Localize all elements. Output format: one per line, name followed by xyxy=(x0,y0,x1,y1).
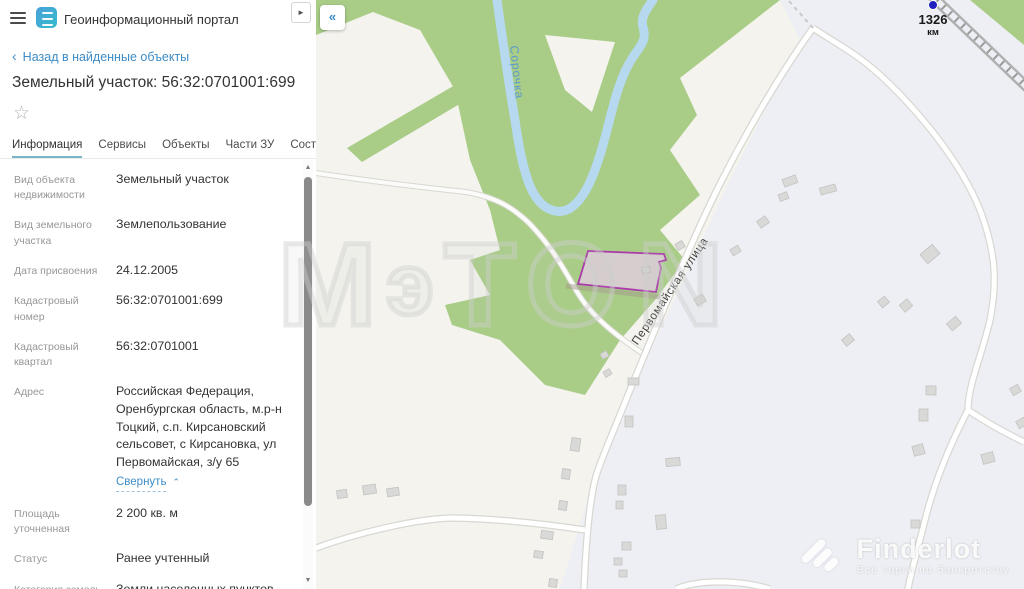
field-value: 2 200 кв. м xyxy=(116,505,292,537)
building-footprint xyxy=(534,550,544,558)
building-footprint xyxy=(911,520,920,528)
field-label: Категория земель xyxy=(14,581,106,589)
tab-Объекты[interactable]: Объекты xyxy=(162,133,209,159)
field-value-text: Землепользование xyxy=(116,217,226,231)
back-chevron-icon: ‹ xyxy=(12,48,17,64)
field-label: Вид объекта недвижимости xyxy=(14,171,106,203)
field-value-text: 56:32:0701001 xyxy=(116,339,199,353)
field-value: 56:32:0701001 xyxy=(116,338,292,370)
portal-logo-icon xyxy=(36,7,57,28)
building-footprint xyxy=(561,468,570,479)
building-footprint xyxy=(548,578,557,587)
field-value-text: Российская Федерация, Оренбургская облас… xyxy=(116,384,282,468)
collapse-address-link[interactable]: Свернуть xyxy=(116,474,166,491)
field-row: Площадь уточненная2 200 кв. м xyxy=(14,505,292,537)
collapse-panel-button[interactable]: « xyxy=(320,5,345,30)
field-label: Вид земельного участка xyxy=(14,216,106,248)
building-footprint xyxy=(655,515,666,530)
selected-parcel[interactable] xyxy=(578,251,666,292)
parcel-building xyxy=(642,266,651,273)
tab-Информация[interactable]: Информация xyxy=(12,133,82,159)
field-row: Категория земельЗемли населенных пунктов xyxy=(14,581,292,589)
field-value: 56:32:0701001:699 xyxy=(116,292,292,324)
field-value-text: 56:32:0701001:699 xyxy=(116,293,223,307)
building-footprint xyxy=(625,416,633,427)
field-label: Статус xyxy=(14,550,106,568)
collapse-chevron-icon: ⌃ xyxy=(172,476,180,489)
panel-scrollbar[interactable]: ▲ ▼ xyxy=(303,160,313,589)
building-footprint xyxy=(619,570,627,577)
field-value: Землепользование xyxy=(116,216,292,248)
building-footprint xyxy=(558,500,567,510)
field-value-text: 24.12.2005 xyxy=(116,263,178,277)
field-row: Вид объекта недвижимостиЗемельный участо… xyxy=(14,171,292,203)
field-value-text: Земельный участок xyxy=(116,172,229,186)
map[interactable]: Сорочка Первомайская улица xyxy=(316,0,1024,589)
tab-bar: ИнформацияСервисыОбъектыЧасти ЗУСостав xyxy=(0,133,316,159)
building-footprint xyxy=(622,542,631,550)
field-value-text: Ранее учтенный xyxy=(116,551,209,565)
building-footprint xyxy=(919,409,928,421)
field-row: Кадастровый квартал56:32:0701001 xyxy=(14,338,292,370)
back-link-label: Назад в найденные объекты xyxy=(23,50,189,64)
building-footprint xyxy=(628,378,639,385)
favorite-star-icon[interactable]: ☆ xyxy=(13,104,35,123)
info-panel: Геоинформационный портал ‹Назад в найден… xyxy=(0,0,316,589)
page-title: Земельный участок: 56:32:0701001:699 xyxy=(0,64,316,92)
scrollbar-thumb[interactable] xyxy=(304,177,312,506)
building-footprint xyxy=(618,485,626,495)
back-link[interactable]: ‹Назад в найденные объекты xyxy=(0,40,316,64)
km-marker-unit: км xyxy=(927,27,939,38)
field-label: Площадь уточненная xyxy=(14,505,106,537)
field-label: Кадастровый номер xyxy=(14,292,106,324)
scroll-down-icon[interactable]: ▼ xyxy=(303,575,313,587)
map-canvas[interactable]: Сорочка Первомайская улица xyxy=(316,0,1024,589)
building-footprint xyxy=(570,437,581,451)
field-value-text: 2 200 кв. м xyxy=(116,506,178,520)
tab-Части ЗУ[interactable]: Части ЗУ xyxy=(226,133,275,159)
building-footprint xyxy=(666,457,681,466)
building-footprint xyxy=(336,489,347,498)
building-footprint xyxy=(387,487,400,497)
field-value-text: Земли населенных пунктов xyxy=(116,582,274,589)
field-label: Дата присвоения xyxy=(14,262,106,280)
building-footprint xyxy=(541,530,554,540)
panel-header: Геоинформационный портал xyxy=(0,0,316,40)
field-value: Земельный участок xyxy=(116,171,292,203)
menu-icon[interactable] xyxy=(10,12,26,24)
building-footprint xyxy=(362,484,376,495)
tab-Состав[interactable]: Состав xyxy=(290,133,316,159)
field-row: Кадастровый номер56:32:0701001:699 xyxy=(14,292,292,324)
field-label: Кадастровый квартал xyxy=(14,338,106,370)
scroll-up-icon[interactable]: ▲ xyxy=(303,162,313,174)
field-row: АдресРоссийская Федерация, Оренбургская … xyxy=(14,383,292,491)
tabs-scroll-right-button[interactable]: ► xyxy=(291,2,311,23)
app-title: Геоинформационный портал xyxy=(64,12,239,27)
field-row: Дата присвоения24.12.2005 xyxy=(14,262,292,280)
tab-Сервисы[interactable]: Сервисы xyxy=(98,133,146,159)
building-footprint xyxy=(616,501,623,509)
field-list: Вид объекта недвижимостиЗемельный участо… xyxy=(0,159,316,589)
km-marker-value: 1326 xyxy=(919,12,948,27)
field-value: Российская Федерация, Оренбургская облас… xyxy=(116,383,292,491)
field-label: Адрес xyxy=(14,383,106,491)
field-value: 24.12.2005 xyxy=(116,262,292,280)
field-value: Земли населенных пунктов xyxy=(116,581,292,589)
geo-portal-app: Геоинформационный портал ‹Назад в найден… xyxy=(0,0,1024,589)
field-value: Ранее учтенный xyxy=(116,550,292,568)
building-footprint xyxy=(926,386,936,395)
field-row: СтатусРанее учтенный xyxy=(14,550,292,568)
building-footprint xyxy=(614,558,622,565)
field-row: Вид земельного участкаЗемлепользование xyxy=(14,216,292,248)
